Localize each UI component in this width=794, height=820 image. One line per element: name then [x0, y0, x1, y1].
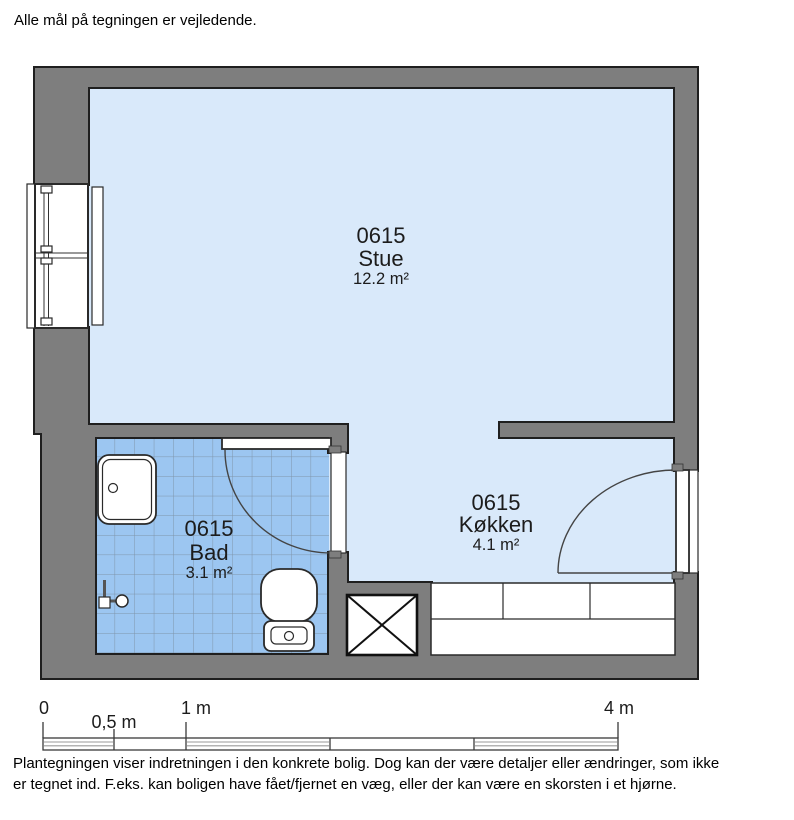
disclaimer-bottom-line2: er tegnet ind. F.eks. kan boligen have f… — [13, 774, 719, 795]
shower-tray-icon — [98, 455, 156, 524]
room-bad-id: 0615 — [185, 516, 234, 541]
scale-tick-4: 4 m — [604, 698, 634, 718]
room-bad-name: Bad — [189, 540, 228, 565]
room-kokken-name: Køkken — [459, 512, 534, 537]
room-label-stue: 0615 Stue 12.2 m² — [353, 223, 409, 288]
room-kokken-area: 4.1 m² — [473, 536, 520, 554]
kitchen-counter — [431, 583, 675, 655]
disclaimer-bottom: Plantegningen viser indretningen i den k… — [13, 753, 719, 795]
room-label-bad: 0615 Bad 3.1 m² — [185, 516, 234, 582]
disclaimer-bottom-line1: Plantegningen viser indretningen i den k… — [13, 753, 719, 774]
scale-tick-1: 1 m — [181, 698, 211, 718]
scale-bar: 0 0,5 m 1 m 4 m — [39, 698, 634, 750]
floor-plan-drawing: 0615 Stue 12.2 m² 0615 Bad 3.1 m² 0615 K… — [0, 0, 794, 760]
room-stue-name: Stue — [358, 246, 403, 271]
room-stue-area: 12.2 m² — [353, 270, 409, 288]
room-bad-area: 3.1 m² — [186, 564, 233, 582]
radiator-icon — [92, 187, 103, 325]
room-stue-id: 0615 — [357, 223, 406, 248]
toilet-icon — [261, 569, 317, 651]
floor-plan-page: Alle mål på tegningen er vejledende. — [0, 0, 794, 820]
window-icon — [27, 184, 88, 328]
scale-tick-0: 0 — [39, 698, 49, 718]
vent-shaft-icon — [347, 595, 417, 655]
